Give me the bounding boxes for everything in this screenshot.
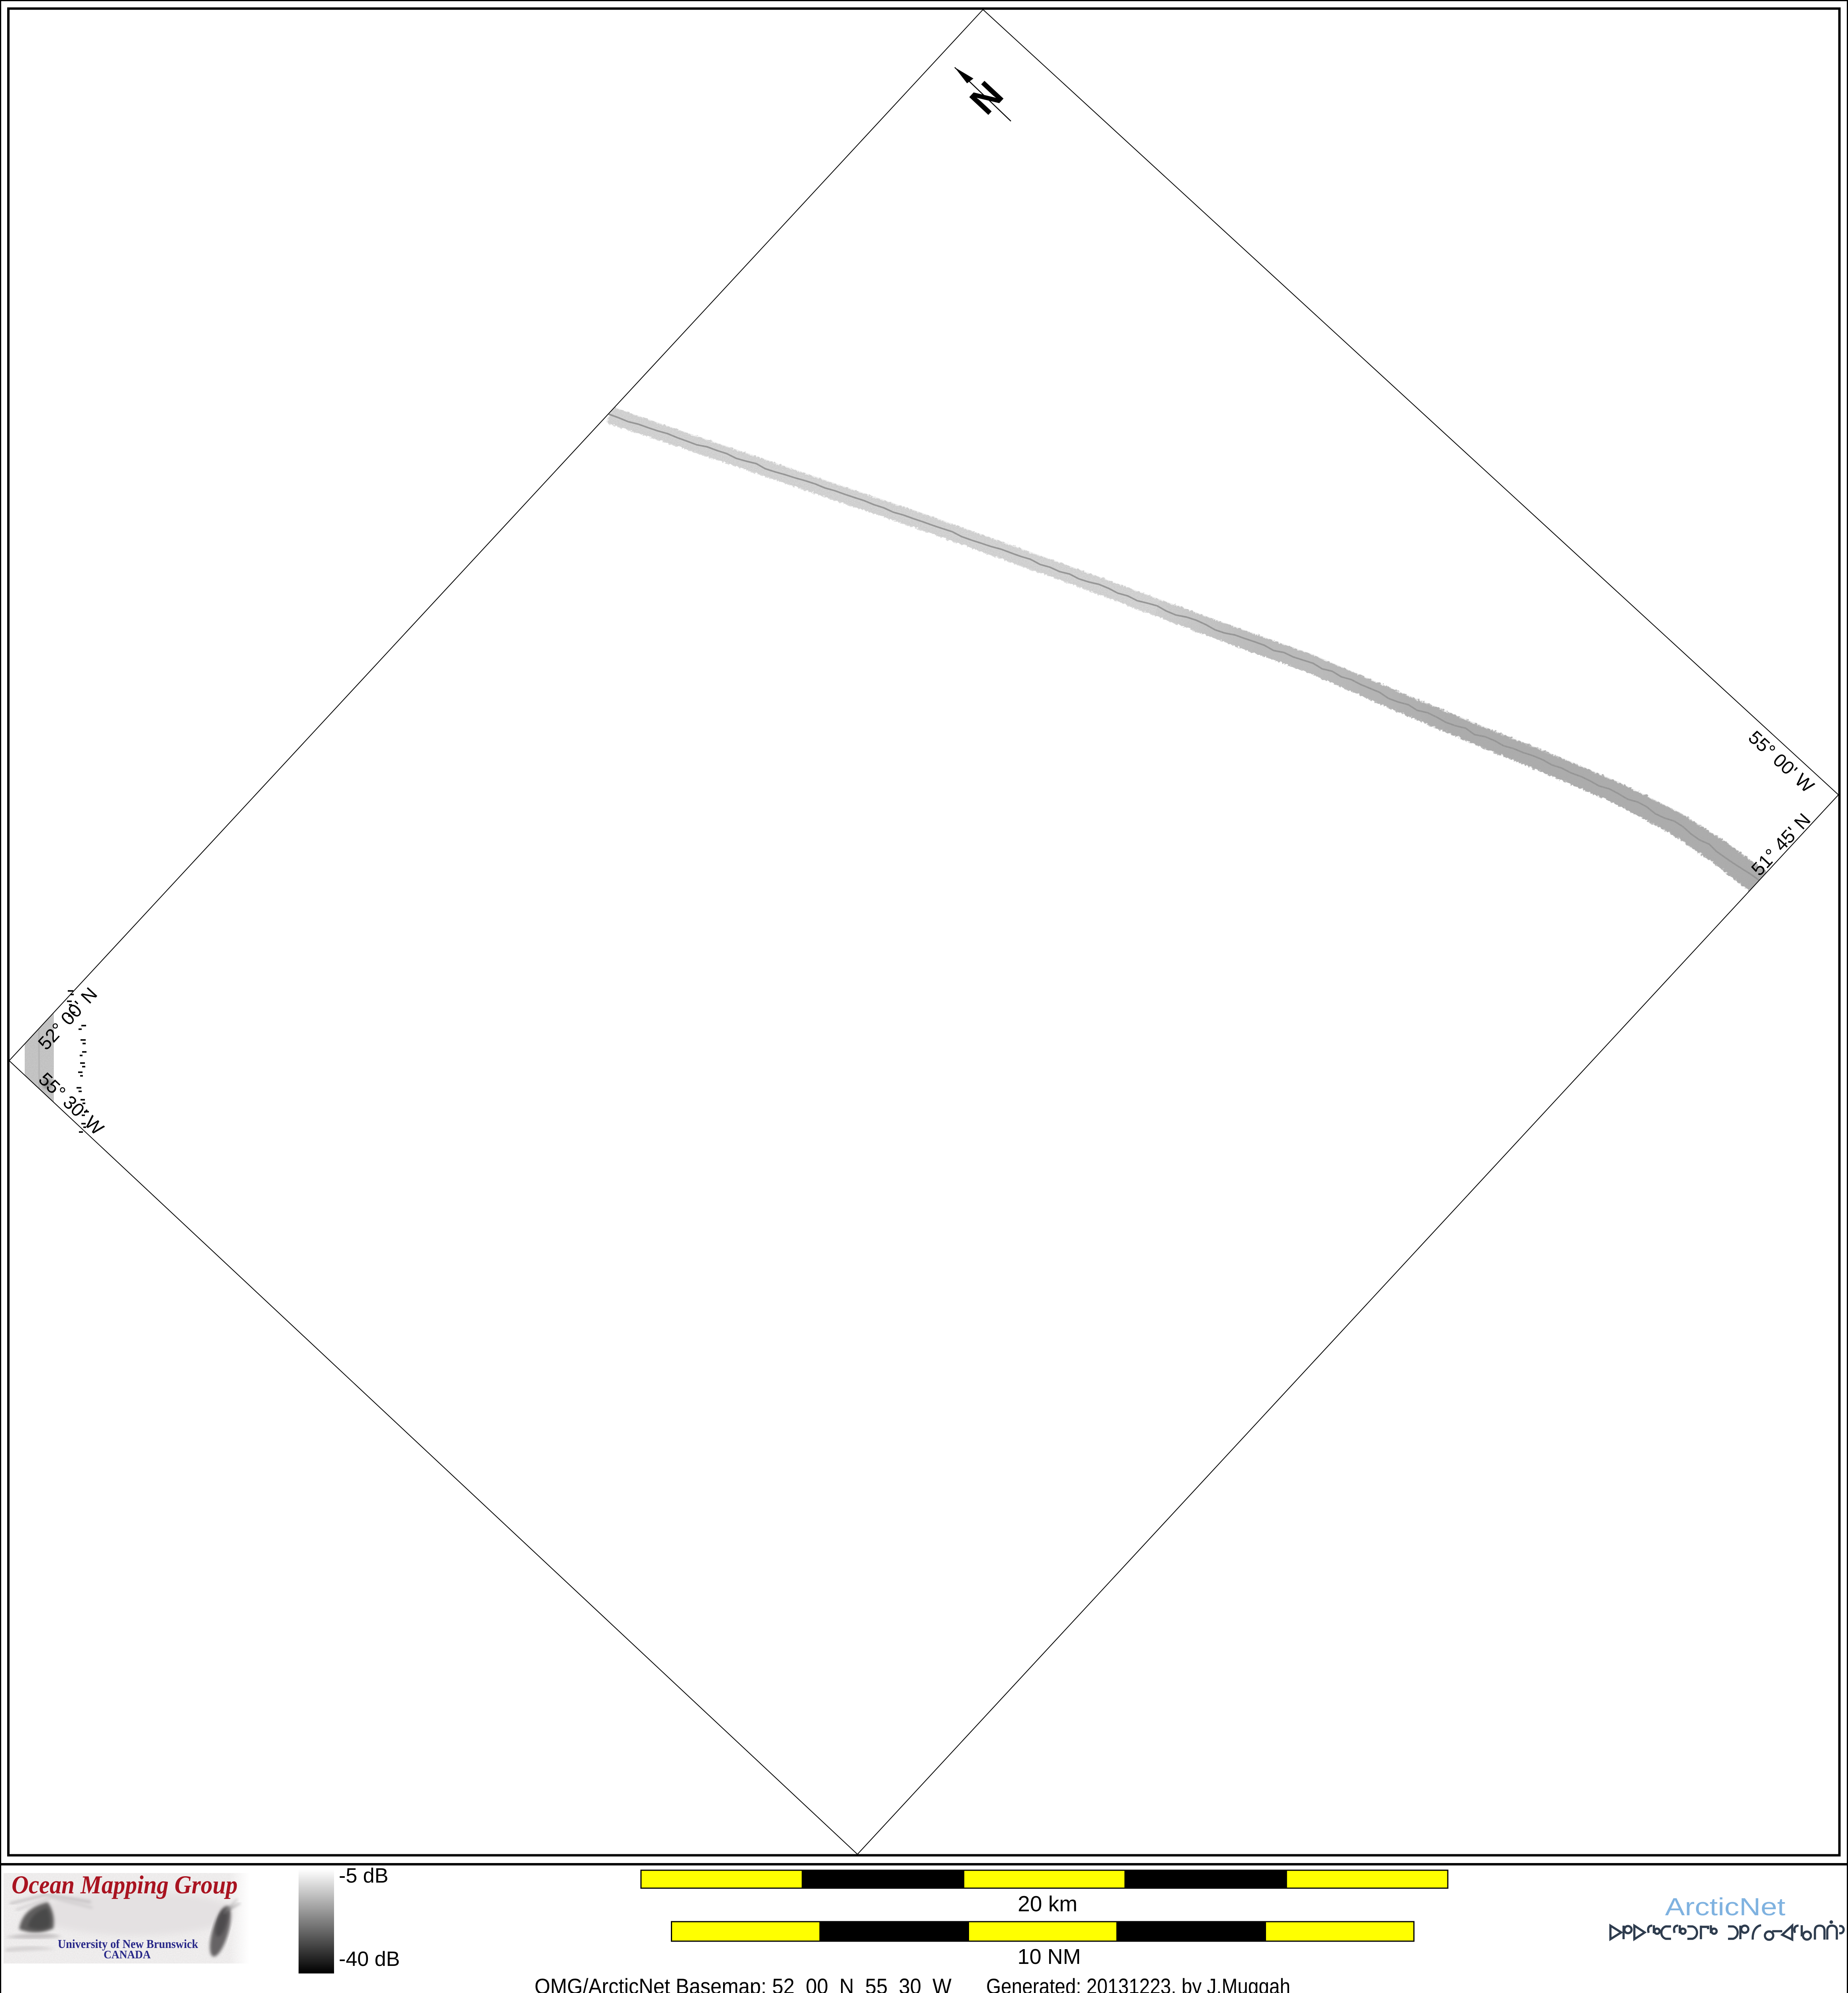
svg-text:10 NM: 10 NM	[1017, 1945, 1081, 1969]
svg-text:Ocean Mapping Group: Ocean Mapping Group	[12, 1871, 238, 1899]
svg-text:OMG/ArcticNet Basemap: 52_00_N: OMG/ArcticNet Basemap: 52_00_N_55_30_W	[535, 1974, 952, 1993]
svg-text:-5 dB: -5 dB	[339, 1864, 388, 1887]
svg-text:Generated: 20131223, by J.Mugg: Generated: 20131223, by J.Muggah	[986, 1974, 1290, 1993]
svg-text:20 km: 20 km	[1018, 1891, 1077, 1916]
svg-text:-40 dB: -40 dB	[339, 1948, 400, 1971]
svg-text:ArcticNet: ArcticNet	[1665, 1893, 1785, 1921]
svg-text:CANADA: CANADA	[104, 1949, 151, 1961]
